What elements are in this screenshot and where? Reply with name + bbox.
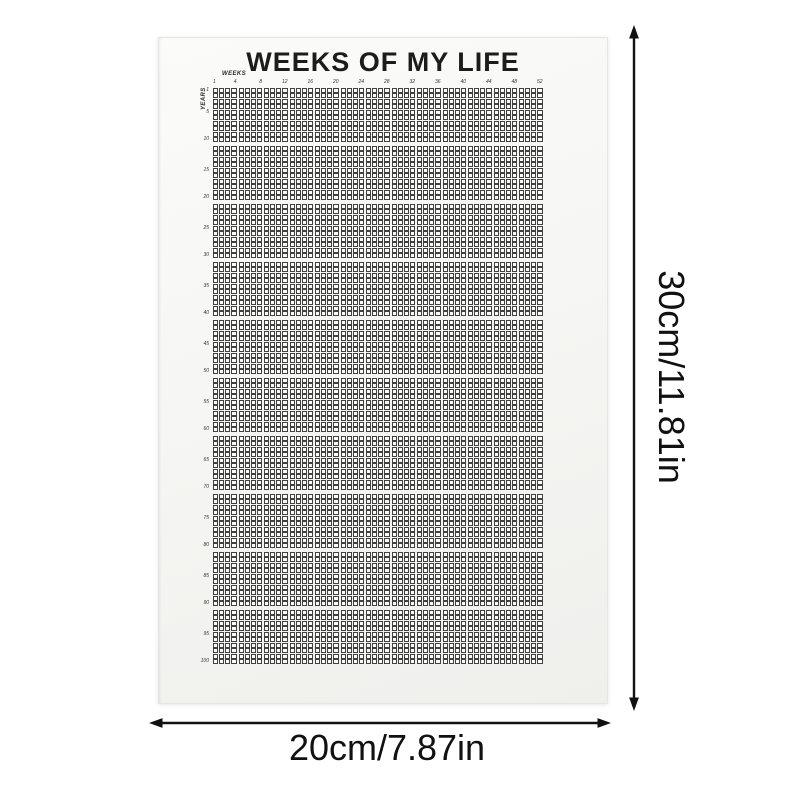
week-cell xyxy=(302,543,307,548)
week-cell xyxy=(251,347,256,352)
week-cell xyxy=(455,93,460,98)
week-cell xyxy=(290,126,295,131)
week-cell xyxy=(461,262,466,267)
week-cell xyxy=(308,405,313,410)
week-cell xyxy=(429,220,434,225)
week-cell xyxy=(455,311,460,316)
week-cell xyxy=(213,168,218,173)
week-cell xyxy=(341,237,346,242)
week-cell xyxy=(315,552,320,557)
week-cell xyxy=(486,347,491,352)
week-cell xyxy=(353,527,358,532)
week-cell xyxy=(378,389,383,394)
week-cell xyxy=(276,574,281,579)
week-cell xyxy=(443,458,448,463)
week-cell xyxy=(302,162,307,167)
week-cell xyxy=(392,146,397,151)
week-cell xyxy=(392,237,397,242)
week-block xyxy=(239,204,263,258)
week-cell xyxy=(341,126,346,131)
week-cell xyxy=(245,400,250,405)
week-cell xyxy=(404,458,409,463)
week-cell xyxy=(423,485,428,490)
week-cell xyxy=(417,151,422,156)
week-cell xyxy=(327,405,332,410)
week-cell xyxy=(290,242,295,247)
week-cell xyxy=(315,93,320,98)
week-cell xyxy=(474,179,479,184)
week-cell xyxy=(404,110,409,115)
week-cell xyxy=(384,209,389,214)
week-cell xyxy=(231,162,236,167)
week-cell xyxy=(410,441,415,446)
week-cell xyxy=(404,552,409,557)
week-cell xyxy=(531,538,536,543)
week-cell xyxy=(219,447,224,452)
week-cell xyxy=(225,190,230,195)
week-cell xyxy=(500,284,505,289)
week-cell xyxy=(302,179,307,184)
week-cell xyxy=(366,590,371,595)
week-cell xyxy=(494,226,499,231)
week-cell xyxy=(245,568,250,573)
week-cell xyxy=(392,88,397,93)
week-cell xyxy=(480,204,485,209)
week-cell xyxy=(347,353,352,358)
week-cell xyxy=(449,278,454,283)
week-cell xyxy=(333,168,338,173)
week-cell xyxy=(225,267,230,272)
week-cell xyxy=(333,416,338,421)
week-cell xyxy=(333,93,338,98)
week-cell xyxy=(225,184,230,189)
week-cell xyxy=(282,289,287,294)
week-cell xyxy=(251,110,256,115)
week-cell xyxy=(372,574,377,579)
week-cell xyxy=(449,173,454,178)
week-cell xyxy=(449,411,454,416)
week-cell xyxy=(366,411,371,416)
week-cell xyxy=(392,190,397,195)
week-cell xyxy=(494,369,499,374)
week-cell xyxy=(378,383,383,388)
week-cell xyxy=(270,579,275,584)
week-cell xyxy=(474,146,479,151)
week-cell xyxy=(506,510,511,515)
week-cell xyxy=(225,394,230,399)
week-cell xyxy=(417,311,422,316)
week-cell xyxy=(494,88,499,93)
week-cell xyxy=(435,458,440,463)
week-cell xyxy=(213,237,218,242)
week-cell xyxy=(480,253,485,258)
week-cell xyxy=(225,436,230,441)
week-cell xyxy=(327,110,332,115)
week-cell xyxy=(257,311,262,316)
week-cell xyxy=(239,552,244,557)
week-cell xyxy=(435,336,440,341)
week-cell xyxy=(276,137,281,142)
week-cell xyxy=(231,93,236,98)
week-cell xyxy=(512,447,517,452)
week-cell xyxy=(333,267,338,272)
week-cell xyxy=(308,505,313,510)
week-cell xyxy=(213,574,218,579)
week-cell xyxy=(264,253,269,258)
week-cell xyxy=(494,331,499,336)
week-cell xyxy=(449,179,454,184)
week-cell xyxy=(486,452,491,457)
week-cell xyxy=(455,585,460,590)
week-cell xyxy=(392,596,397,601)
week-cell xyxy=(417,557,422,562)
week-cell xyxy=(213,626,218,631)
week-cell xyxy=(282,383,287,388)
week-cell xyxy=(290,168,295,173)
week-cell xyxy=(455,596,460,601)
week-cell xyxy=(315,179,320,184)
week-cell xyxy=(480,231,485,236)
week-cell xyxy=(302,146,307,151)
week-cell xyxy=(449,184,454,189)
week-cell xyxy=(213,88,218,93)
week-cell xyxy=(327,447,332,452)
week-cell xyxy=(257,552,262,557)
week-cell xyxy=(282,505,287,510)
week-cell xyxy=(225,220,230,225)
week-cell xyxy=(443,510,448,515)
week-cell xyxy=(506,146,511,151)
week-cell xyxy=(327,231,332,236)
week-cell xyxy=(302,427,307,432)
week-cell xyxy=(429,151,434,156)
week-cell xyxy=(366,347,371,352)
week-cell xyxy=(327,173,332,178)
week-cell xyxy=(512,121,517,126)
week-cell xyxy=(353,521,358,526)
week-cell xyxy=(392,422,397,427)
week-cell xyxy=(423,579,428,584)
week-cell xyxy=(519,400,524,405)
week-cell xyxy=(282,579,287,584)
week-cell xyxy=(264,579,269,584)
year-tick-label: 40 xyxy=(197,311,209,316)
week-cell xyxy=(494,532,499,537)
week-cell xyxy=(333,394,338,399)
week-block xyxy=(264,436,288,490)
week-cell xyxy=(359,441,364,446)
week-cell xyxy=(531,284,536,289)
week-cell xyxy=(468,209,473,214)
week-cell xyxy=(225,494,230,499)
week-cell xyxy=(417,378,422,383)
week-cell xyxy=(512,568,517,573)
week-cell xyxy=(480,168,485,173)
week-cell xyxy=(494,137,499,142)
week-cell xyxy=(219,237,224,242)
week-cell xyxy=(531,104,536,109)
week-cell xyxy=(347,157,352,162)
week-cell xyxy=(282,358,287,363)
week-cell xyxy=(239,173,244,178)
week-cell xyxy=(410,480,415,485)
week-cell xyxy=(449,579,454,584)
week-cell xyxy=(398,568,403,573)
week-cell xyxy=(251,162,256,167)
week-block xyxy=(315,88,339,142)
week-cell xyxy=(404,422,409,427)
week-cell xyxy=(455,521,460,526)
week-cell xyxy=(239,596,244,601)
week-cell xyxy=(435,358,440,363)
week-cell xyxy=(366,427,371,432)
week-cell xyxy=(321,137,326,142)
week-cell xyxy=(251,458,256,463)
week-cell xyxy=(327,262,332,267)
week-cell xyxy=(410,151,415,156)
week-cell xyxy=(486,93,491,98)
week-cell xyxy=(449,499,454,504)
week-cell xyxy=(225,231,230,236)
week-cell xyxy=(392,93,397,98)
week-cell xyxy=(506,320,511,325)
week-cell xyxy=(251,521,256,526)
week-cell xyxy=(308,146,313,151)
week-cell xyxy=(494,242,499,247)
week-cell xyxy=(245,416,250,421)
week-cell xyxy=(359,267,364,272)
week-cell xyxy=(435,300,440,305)
week-cell xyxy=(239,505,244,510)
year-tick-label: 65 xyxy=(197,458,209,463)
week-cell xyxy=(333,447,338,452)
week-cell xyxy=(347,527,352,532)
week-cell xyxy=(308,331,313,336)
week-cell xyxy=(449,452,454,457)
week-cell xyxy=(392,590,397,595)
week-cell xyxy=(245,485,250,490)
week-cell xyxy=(333,505,338,510)
week-cell xyxy=(519,93,524,98)
week-cell xyxy=(276,99,281,104)
week-cell xyxy=(480,574,485,579)
week-cell xyxy=(486,104,491,109)
week-cell xyxy=(353,394,358,399)
week-cell xyxy=(372,552,377,557)
week-cell xyxy=(308,557,313,562)
week-cell xyxy=(366,195,371,200)
week-cell xyxy=(525,590,530,595)
week-cell xyxy=(531,474,536,479)
week-cell xyxy=(449,389,454,394)
week-cell xyxy=(455,300,460,305)
week-cell xyxy=(423,146,428,151)
week-cell xyxy=(245,585,250,590)
week-cell xyxy=(290,295,295,300)
week-block xyxy=(417,88,441,142)
week-cell xyxy=(213,325,218,330)
week-cell xyxy=(404,378,409,383)
week-cell xyxy=(359,563,364,568)
week-cell xyxy=(225,590,230,595)
week-cell xyxy=(353,552,358,557)
week-cell xyxy=(239,342,244,347)
week-cell xyxy=(480,93,485,98)
week-cell xyxy=(461,568,466,573)
week-block xyxy=(264,378,288,432)
week-cell xyxy=(378,474,383,479)
week-cell xyxy=(257,204,262,209)
week-cell xyxy=(423,590,428,595)
week-cell xyxy=(302,505,307,510)
week-cell xyxy=(219,99,224,104)
week-cell xyxy=(353,93,358,98)
week-cell xyxy=(315,463,320,468)
week-cell xyxy=(449,132,454,137)
week-cell xyxy=(410,226,415,231)
week-cell xyxy=(537,494,542,499)
week-cell xyxy=(480,505,485,510)
week-cell xyxy=(225,579,230,584)
week-cell xyxy=(245,132,250,137)
week-cell xyxy=(270,273,275,278)
week-cell xyxy=(347,320,352,325)
week-cell xyxy=(213,99,218,104)
week-cell xyxy=(506,596,511,601)
week-cell xyxy=(359,151,364,156)
week-block xyxy=(264,88,288,142)
week-cell xyxy=(392,342,397,347)
week-cell xyxy=(512,190,517,195)
week-cell xyxy=(321,99,326,104)
week-cell xyxy=(531,121,536,126)
week-cell xyxy=(423,331,428,336)
week-cell xyxy=(429,295,434,300)
week-cell xyxy=(506,364,511,369)
week-cell xyxy=(417,162,422,167)
week-cell xyxy=(264,505,269,510)
week-cell xyxy=(500,336,505,341)
week-block xyxy=(341,494,365,548)
week-cell xyxy=(443,115,448,120)
week-cell xyxy=(404,400,409,405)
week-cell xyxy=(225,157,230,162)
week-cell xyxy=(378,157,383,162)
week-cell xyxy=(404,494,409,499)
week-cell xyxy=(290,99,295,104)
week-cell xyxy=(525,115,530,120)
week-cell xyxy=(302,331,307,336)
week-cell xyxy=(282,394,287,399)
week-cell xyxy=(315,364,320,369)
week-cell xyxy=(239,499,244,504)
week-cell xyxy=(519,358,524,363)
week-cell xyxy=(512,585,517,590)
week-cell xyxy=(384,253,389,258)
week-cell xyxy=(417,126,422,131)
week-cell xyxy=(474,204,479,209)
week-cell xyxy=(512,331,517,336)
week-cell xyxy=(245,494,250,499)
week-cell xyxy=(359,242,364,247)
week-cell xyxy=(384,99,389,104)
week-cell xyxy=(429,184,434,189)
week-cell xyxy=(500,137,505,142)
week-cell xyxy=(474,237,479,242)
week-cell xyxy=(308,262,313,267)
week-block xyxy=(366,262,390,316)
week-cell xyxy=(500,104,505,109)
week-cell xyxy=(296,557,301,562)
week-cell xyxy=(435,353,440,358)
week-cell xyxy=(219,195,224,200)
week-cell xyxy=(468,267,473,272)
week-cell xyxy=(296,137,301,142)
week-cell xyxy=(461,325,466,330)
week-cell xyxy=(486,552,491,557)
week-cell xyxy=(372,369,377,374)
week-cell xyxy=(435,411,440,416)
week-cell xyxy=(296,157,301,162)
week-block xyxy=(443,320,467,374)
week-cell xyxy=(378,289,383,294)
week-cell xyxy=(341,93,346,98)
week-cell xyxy=(353,184,358,189)
week-cell xyxy=(512,220,517,225)
week-cell xyxy=(251,121,256,126)
week-cell xyxy=(327,585,332,590)
week-cell xyxy=(245,601,250,606)
week-cell xyxy=(384,543,389,548)
week-cell xyxy=(264,88,269,93)
week-cell xyxy=(461,137,466,142)
week-cell xyxy=(410,585,415,590)
week-cell xyxy=(257,436,262,441)
week-cell xyxy=(449,596,454,601)
week-cell xyxy=(282,521,287,526)
week-cell xyxy=(480,137,485,142)
week-cell xyxy=(461,168,466,173)
week-cell xyxy=(219,137,224,142)
week-cell xyxy=(531,157,536,162)
week-cell xyxy=(455,242,460,247)
week-cell xyxy=(500,168,505,173)
week-cell xyxy=(480,516,485,521)
week-cell xyxy=(372,284,377,289)
week-cell xyxy=(341,273,346,278)
week-cell xyxy=(366,104,371,109)
week-cell xyxy=(276,248,281,253)
week-cell xyxy=(308,353,313,358)
week-cell xyxy=(525,273,530,278)
week-cell xyxy=(308,568,313,573)
week-cell xyxy=(384,325,389,330)
week-block xyxy=(366,436,390,490)
week-cell xyxy=(290,527,295,532)
week-cell xyxy=(461,369,466,374)
week-cell xyxy=(276,436,281,441)
week-cell xyxy=(512,596,517,601)
week-cell xyxy=(213,527,218,532)
week-cell xyxy=(276,563,281,568)
week-cell xyxy=(468,447,473,452)
week-cell xyxy=(347,179,352,184)
week-cell xyxy=(219,632,224,637)
week-cell xyxy=(251,358,256,363)
week-cell xyxy=(315,505,320,510)
week-cell xyxy=(341,184,346,189)
week-cell xyxy=(404,499,409,504)
